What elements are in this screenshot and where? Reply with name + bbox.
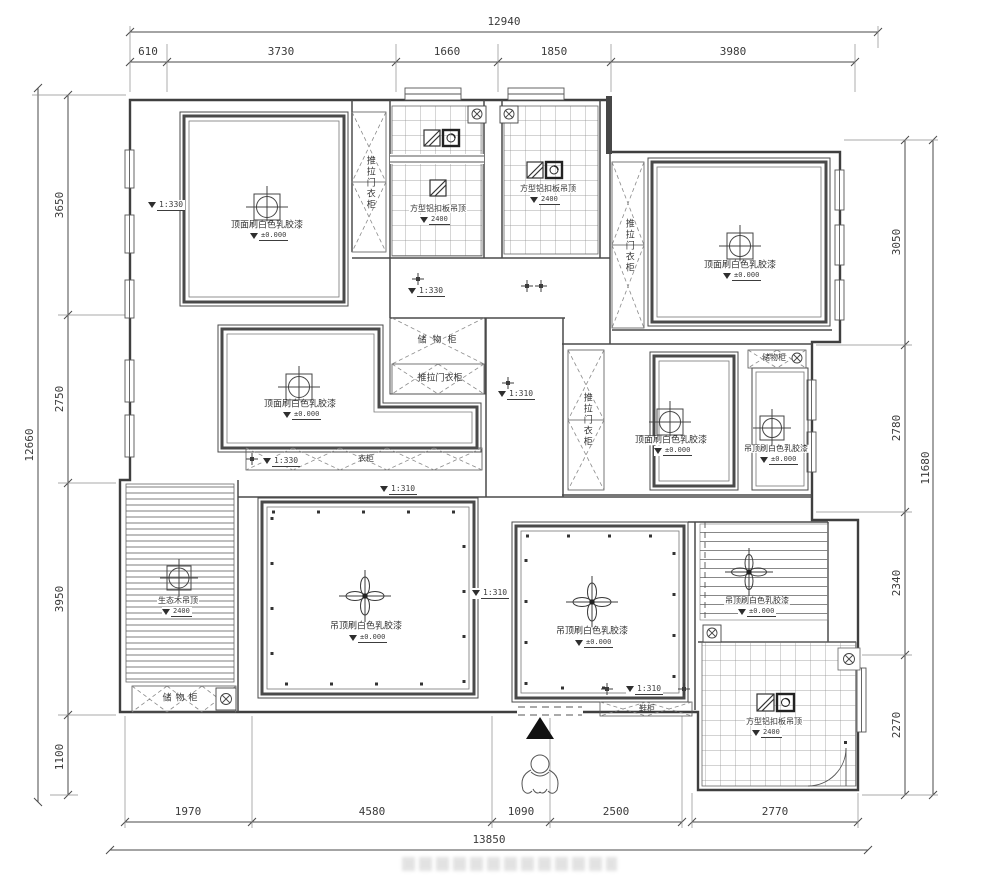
cabinet-label-wardrobe-top-left: 推拉门衣柜 [363, 156, 374, 211]
elevation-marker-icon [723, 273, 731, 279]
floorplan-drawing [0, 0, 1000, 876]
dim-bottom-seg-2770: 2770 [761, 806, 790, 818]
elevation-marker-icon [283, 412, 291, 418]
height-kitchen: 2400 [420, 215, 450, 225]
elevation-marker-icon [148, 202, 156, 208]
dim-top-total: 12940 [486, 16, 521, 28]
room-label-kitchen: 方型铝扣板吊顶 [409, 205, 467, 213]
level-marker-2: 1:330 [408, 286, 445, 297]
dim-bottom-seg-1970: 1970 [174, 806, 203, 818]
dim-bottom-total: 13850 [471, 834, 506, 846]
elevation-marker-icon [760, 457, 768, 463]
level-marker-1: 1:330 [148, 200, 185, 211]
cabinet-label-wardrobe-center: 推拉门衣柜 [416, 374, 463, 383]
elevation-bedroom-top-right: ±0.000 [723, 271, 761, 281]
dim-top-seg-610: 610 [137, 46, 159, 58]
elevation-marker-icon [752, 730, 760, 736]
elevation-bedroom-top-left: ±0.000 [250, 231, 288, 241]
dim-right-seg-2780: 2780 [891, 414, 903, 443]
level-marker-3: 1:310 [498, 389, 535, 400]
dim-right-seg-2340: 2340 [891, 569, 903, 598]
elevation-marker-icon [626, 686, 634, 692]
cabinet-label-wardrobe-top-right: 推拉门衣柜 [622, 219, 633, 274]
room-label-bedroom-right: 顶面刷白色乳胶漆 [634, 436, 708, 445]
elevation-marker-icon [250, 233, 258, 239]
dim-right-total: 11680 [920, 450, 932, 485]
room-label-balcony: 生态木吊顶 [157, 597, 199, 605]
height-bathroom: 2400 [530, 195, 560, 205]
dim-top-seg-1850: 1850 [540, 46, 569, 58]
dim-bottom-seg-1090: 1090 [507, 806, 536, 818]
elevation-marker-icon [472, 590, 480, 596]
watermark [402, 857, 617, 871]
cabinet-label-closet-center: 衣柜 [357, 455, 375, 463]
elevation-bedroom-right: ±0.000 [654, 446, 692, 456]
elevation-marker-icon [408, 288, 416, 294]
room-label-bedroom-top-left: 顶面刷白色乳胶漆 [230, 221, 304, 230]
elevation-marker-icon [263, 458, 271, 464]
room-label-bedroom-top-right: 顶面刷白色乳胶漆 [703, 261, 777, 270]
level-marker-5: 1:310 [380, 484, 417, 495]
dim-top-seg-1660: 1660 [433, 46, 462, 58]
elevation-marker-icon [654, 448, 662, 454]
room-label-study: 吊顶刷白色乳胶漆 [743, 445, 809, 453]
elevation-study: ±0.000 [760, 455, 798, 465]
elevation-marker-icon [420, 217, 428, 223]
elevation-bedroom-left: ±0.000 [283, 410, 321, 420]
dim-left-seg-1100: 1100 [54, 743, 66, 772]
elevation-living-room: ±0.000 [349, 633, 387, 643]
entry-opening [517, 705, 583, 718]
elevation-marker-icon [162, 609, 170, 615]
dim-left-total: 12660 [24, 427, 36, 462]
dim-right-seg-2270: 2270 [891, 711, 903, 740]
wall-columns [606, 96, 612, 154]
elevation-marker-icon [530, 197, 538, 203]
dim-left-seg-3950: 3950 [54, 585, 66, 614]
elevation-hallway: ±0.000 [738, 607, 776, 617]
room-label-dining-room: 吊顶刷白色乳胶漆 [555, 627, 629, 636]
elevation-marker-icon [498, 391, 506, 397]
person-figure [522, 755, 558, 793]
level-marker-6: 1:310 [626, 684, 663, 695]
elevation-marker-icon [380, 486, 388, 492]
dim-right-seg-3050: 3050 [891, 228, 903, 257]
cabinet-label-storage-center: 储物柜 [416, 336, 463, 345]
room-label-living-room: 吊顶刷白色乳胶漆 [329, 622, 403, 631]
dim-top-seg-3730: 3730 [267, 46, 296, 58]
level-marker-4: 1:330 [263, 456, 300, 467]
elevation-marker-icon [575, 640, 583, 646]
dim-bottom-seg-4580: 4580 [358, 806, 387, 818]
exhaust-fan-icons [443, 130, 794, 711]
room-label-bathroom: 方型铝扣板吊顶 [519, 185, 577, 193]
height-kitchen-south: 2400 [752, 728, 782, 738]
cabinet-label-shoe-cabinet: 鞋柜 [638, 705, 656, 713]
dim-bottom-seg-2500: 2500 [602, 806, 631, 818]
room-label-hallway: 吊顶刷白色乳胶漆 [724, 597, 790, 605]
elevation-marker-icon [349, 635, 357, 641]
level-marker-7: 1:310 [472, 588, 509, 599]
dim-top-seg-3980: 3980 [719, 46, 748, 58]
elevation-marker-icon [738, 609, 746, 615]
cabinet-label-storage-right: 储物柜 [761, 354, 787, 362]
room-label-bedroom-left: 顶面刷白色乳胶漆 [263, 400, 337, 409]
elevation-dining-room: ±0.000 [575, 638, 613, 648]
dim-left-seg-3650: 3650 [54, 191, 66, 220]
cabinet-label-storage-balcony: 储物柜 [161, 694, 202, 703]
ceiling-plan-canvas: 12940 610 3730 1660 1850 3980 12660 3650… [0, 0, 1000, 876]
height-balcony: 2400 [162, 607, 192, 617]
room-label-kitchen-south: 方型铝扣板吊顶 [745, 718, 803, 726]
dim-left-seg-2750: 2750 [54, 385, 66, 414]
window-symbols [125, 88, 866, 732]
cabinet-label-wardrobe-right: 推拉门衣柜 [580, 393, 591, 448]
